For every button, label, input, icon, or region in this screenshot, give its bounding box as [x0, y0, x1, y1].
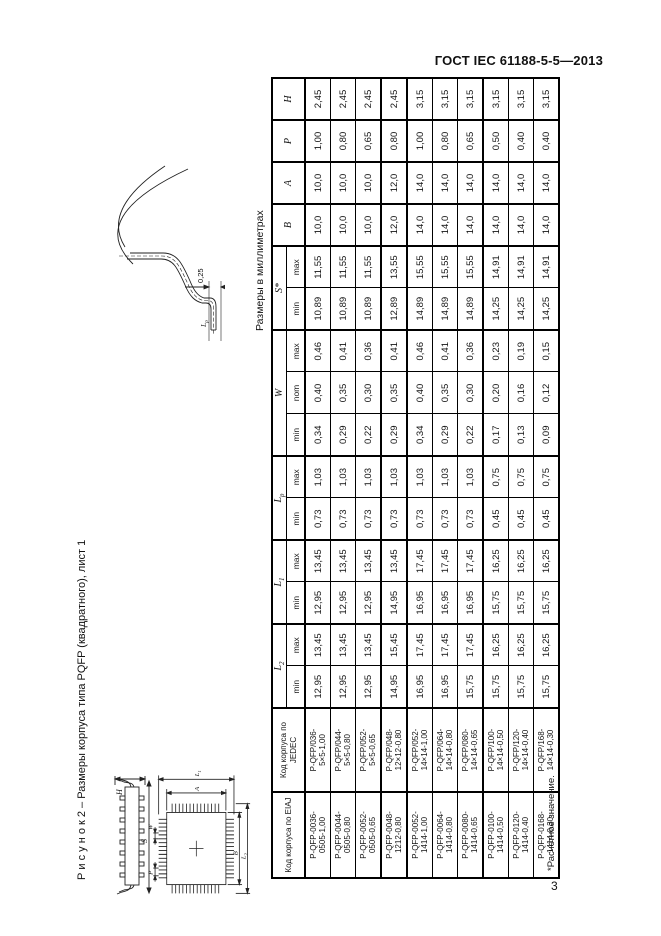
- page-number: 3: [551, 879, 558, 893]
- cell-value: 15,75: [458, 666, 484, 708]
- table-row: P-QFP-0048-1212-0,80 P-QFP/048-12×12-0,8…: [381, 78, 407, 878]
- cell-jedec-code: P-QFP/080-14×14-0,65: [458, 708, 484, 792]
- cell-value: 0,50: [483, 120, 509, 162]
- cell-value: 13,45: [331, 540, 356, 582]
- cell-value: 14,89: [433, 288, 458, 330]
- cell-value: 13,55: [381, 246, 407, 288]
- dim-label-b: B: [233, 851, 240, 855]
- cell-value: 1,03: [407, 456, 433, 498]
- cell-value: 12,89: [381, 288, 407, 330]
- cell-value: 15,55: [458, 246, 484, 288]
- cell-value: 12,0: [381, 204, 407, 246]
- cell-value: 1,00: [407, 120, 433, 162]
- cell-eiaj-code: P-QFP-0036-0505-1,00: [305, 792, 331, 878]
- cell-value: 13,45: [356, 540, 382, 582]
- cell-value: 0,80: [433, 120, 458, 162]
- table-row: P-QFP-0036-0505-1,00 P-QFP/036-5×5-1,00 …: [305, 78, 331, 878]
- column-header-b: B: [272, 204, 305, 246]
- cell-value: 2,45: [305, 78, 331, 120]
- cell-value: 13,45: [305, 540, 331, 582]
- subheader-max: max: [287, 624, 306, 666]
- cell-eiaj-code: P-QFP-0044-0505-0,80: [331, 792, 356, 878]
- cell-jedec-code: P-QFP/048-12×12-0,80: [381, 708, 407, 792]
- cell-value: 16,25: [534, 624, 560, 666]
- cell-value: 0,73: [356, 498, 382, 540]
- cell-eiaj-code: P-QFP-0100-1414-0,50: [483, 792, 509, 878]
- cell-value: 0,45: [534, 498, 560, 540]
- cell-value: 14,0: [407, 204, 433, 246]
- column-header-s: S*: [272, 246, 287, 330]
- cell-value: 17,45: [458, 540, 484, 582]
- cell-value: 0,73: [433, 498, 458, 540]
- cell-value: 11,55: [331, 246, 356, 288]
- cell-value: 12,95: [356, 582, 382, 624]
- cell-value: 12,95: [331, 666, 356, 708]
- cell-value: 0,75: [509, 456, 534, 498]
- cell-value: 16,95: [458, 582, 484, 624]
- cell-value: 14,95: [381, 666, 407, 708]
- cell-value: 0,34: [305, 414, 331, 456]
- column-header-eiaj: Код корпуса по EIAJ: [272, 792, 305, 878]
- cell-jedec-code: P-QFP/044-5×5-0,80: [331, 708, 356, 792]
- cell-value: 15,75: [534, 666, 560, 708]
- cell-value: 0,29: [433, 414, 458, 456]
- cell-value: 15,75: [509, 666, 534, 708]
- cell-jedec-code: P-QFP/036-5×5-1,00: [305, 708, 331, 792]
- cell-value: 15,45: [381, 624, 407, 666]
- cell-value: 1,03: [356, 456, 382, 498]
- cell-value: 10,0: [305, 204, 331, 246]
- column-header-w: W: [272, 330, 287, 456]
- cell-value: 14,25: [509, 288, 534, 330]
- cell-value: 15,75: [483, 666, 509, 708]
- subheader-max: max: [287, 246, 306, 288]
- cell-value: 14,0: [509, 162, 534, 204]
- cell-value: 16,25: [509, 540, 534, 582]
- cell-value: 0,13: [509, 414, 534, 456]
- cell-value: 0,46: [305, 330, 331, 372]
- cell-value: 13,45: [356, 624, 382, 666]
- cell-value: 3,15: [458, 78, 484, 120]
- column-header-l2: L2: [272, 624, 287, 708]
- cell-value: 2,45: [356, 78, 382, 120]
- table-footnote: *Расчетное значение.: [546, 775, 557, 871]
- cell-value: 0,80: [381, 120, 407, 162]
- cell-value: 11,55: [305, 246, 331, 288]
- column-header-lp: Lp: [272, 456, 287, 540]
- lead-detail-diagram: 0,25 Lp: [103, 162, 225, 347]
- cell-value: 17,45: [458, 624, 484, 666]
- subheader-max: max: [287, 330, 306, 372]
- column-header-h: H: [272, 78, 305, 120]
- cell-value: 1,03: [381, 456, 407, 498]
- table-row: P-QFP-0052-0505-0,65 P-QFP/052-5×5-0,65 …: [356, 78, 382, 878]
- subheader-nom: nom: [287, 372, 306, 414]
- cell-eiaj-code: P-QFP-0052-0505-0,65: [356, 792, 382, 878]
- cell-value: 0,20: [483, 372, 509, 414]
- cell-value: 0,65: [356, 120, 382, 162]
- table-row: P-QFP-0052-1414-1,00 P-QFP/052-14×14-1,0…: [407, 78, 433, 878]
- cell-value: 0,40: [509, 120, 534, 162]
- subheader-min: min: [287, 414, 306, 456]
- cell-value: 0,73: [305, 498, 331, 540]
- cell-value: 14,0: [458, 162, 484, 204]
- cell-value: 0,34: [407, 414, 433, 456]
- cell-value: 15,55: [433, 246, 458, 288]
- cell-value: 0,30: [356, 372, 382, 414]
- cell-value: 0,09: [534, 414, 560, 456]
- table-row: P-QFP-0100-1414-0,50 P-QFP/100-14×14-0,5…: [483, 78, 509, 878]
- cell-value: 0,15: [534, 330, 560, 372]
- dimensions-table: Код корпуса по EIAJ Код корпуса по JEDEC…: [271, 77, 560, 879]
- cell-value: 16,95: [433, 666, 458, 708]
- cell-value: 0,41: [433, 330, 458, 372]
- cell-value: 14,0: [407, 162, 433, 204]
- cell-value: 0,73: [407, 498, 433, 540]
- column-header-p: P: [272, 120, 305, 162]
- cell-value: 0,41: [381, 330, 407, 372]
- top-view-diagram: P W A L1 B L2: [147, 752, 251, 908]
- cell-value: 0,17: [483, 414, 509, 456]
- cell-value: 17,45: [433, 540, 458, 582]
- dim-label-offset: 0,25: [196, 268, 205, 283]
- cell-value: 16,95: [407, 666, 433, 708]
- cell-value: 16,95: [433, 582, 458, 624]
- dim-label-p: P: [148, 871, 155, 876]
- subheader-max: max: [287, 456, 306, 498]
- cell-value: 12,95: [305, 582, 331, 624]
- subheader-min: min: [287, 288, 306, 330]
- cell-value: 2,45: [331, 78, 356, 120]
- cell-value: 10,0: [331, 162, 356, 204]
- cell-value: 0,41: [331, 330, 356, 372]
- cell-value: 16,95: [407, 582, 433, 624]
- cell-value: 17,45: [407, 540, 433, 582]
- cell-value: 0,40: [305, 372, 331, 414]
- cell-value: 13,45: [381, 540, 407, 582]
- cell-value: 0,40: [407, 372, 433, 414]
- cell-value: 3,15: [509, 78, 534, 120]
- cell-value: 13,45: [305, 624, 331, 666]
- table-row: P-QFP-0044-0505-0,80 P-QFP/044-5×5-0,80 …: [331, 78, 356, 878]
- cell-jedec-code: P-QFP/052-5×5-0,65: [356, 708, 382, 792]
- cell-value: 0,12: [534, 372, 560, 414]
- cell-value: 14,0: [534, 162, 560, 204]
- cell-value: 14,0: [433, 204, 458, 246]
- cell-value: 3,15: [407, 78, 433, 120]
- cell-value: 14,0: [483, 162, 509, 204]
- cell-value: 12,95: [356, 666, 382, 708]
- subheader-min: min: [287, 498, 306, 540]
- cell-value: 0,35: [381, 372, 407, 414]
- cell-eiaj-code: P-QFP-0052-1414-1,00: [407, 792, 433, 878]
- table-row: P-QFP-0080-1414-0,65 P-QFP/080-14×14-0,6…: [458, 78, 484, 878]
- cell-value: 10,89: [331, 288, 356, 330]
- cell-value: 1,03: [458, 456, 484, 498]
- cell-value: 0,40: [534, 120, 560, 162]
- cell-value: 14,91: [483, 246, 509, 288]
- cell-value: 13,45: [331, 624, 356, 666]
- cell-value: 14,89: [407, 288, 433, 330]
- cell-value: 14,91: [509, 246, 534, 288]
- cell-value: 14,25: [534, 288, 560, 330]
- cell-eiaj-code: P-QFP-0080-1414-0,65: [458, 792, 484, 878]
- cell-value: 0,35: [331, 372, 356, 414]
- cell-value: 16,25: [483, 624, 509, 666]
- cell-jedec-code: P-QFP/064-14×14-0,80: [433, 708, 458, 792]
- cell-value: 14,91: [534, 246, 560, 288]
- cell-value: 3,15: [534, 78, 560, 120]
- dim-label-l2: L2: [241, 852, 249, 860]
- cell-jedec-code: P-QFP/120-14×14-0,40: [509, 708, 534, 792]
- dim-label-h: H: [115, 788, 124, 796]
- cell-value: 10,89: [305, 288, 331, 330]
- table-body: P-QFP-0036-0505-1,00 P-QFP/036-5×5-1,00 …: [305, 78, 559, 878]
- cell-value: 0,19: [509, 330, 534, 372]
- cell-value: 0,73: [381, 498, 407, 540]
- cell-value: 16,25: [483, 540, 509, 582]
- cell-value: 14,0: [509, 204, 534, 246]
- cell-value: 0,29: [381, 414, 407, 456]
- cell-value: 16,25: [534, 540, 560, 582]
- column-header-a: A: [272, 162, 305, 204]
- cell-value: 0,36: [458, 330, 484, 372]
- cell-value: 12,95: [305, 666, 331, 708]
- cell-value: 15,75: [534, 582, 560, 624]
- cell-value: 14,95: [381, 582, 407, 624]
- dim-label-a: A: [194, 786, 201, 792]
- figure-caption: Р и с у н о к 2 – Размеры корпуса типа P…: [76, 340, 88, 880]
- cell-value: 10,0: [331, 204, 356, 246]
- cell-value: 17,45: [433, 624, 458, 666]
- column-header-jedec: Код корпуса по JEDEC: [272, 708, 305, 792]
- subheader-min: min: [287, 666, 306, 708]
- cell-value: 0,16: [509, 372, 534, 414]
- table-row: P-QFP-0064-1414-0,80 P-QFP/064-14×14-0,8…: [433, 78, 458, 878]
- cell-value: 15,75: [509, 582, 534, 624]
- cell-value: 10,89: [356, 288, 382, 330]
- rotated-content: Р и с у н о к 2 – Размеры корпуса типа P…: [75, 55, 567, 935]
- subheader-max: max: [287, 540, 306, 582]
- cell-value: 0,36: [356, 330, 382, 372]
- package-body-arc: [118, 169, 188, 264]
- cell-value: 15,75: [483, 582, 509, 624]
- cell-value: 14,25: [483, 288, 509, 330]
- cell-value: 0,80: [331, 120, 356, 162]
- side-view-leads: [120, 796, 144, 877]
- cell-value: 12,0: [381, 162, 407, 204]
- dim-label-l1: L1: [194, 770, 202, 777]
- document-page: ГОСТ IEC 61188-5-5—2013 Р и с у н о к 2 …: [0, 0, 661, 936]
- cell-value: 10,0: [356, 204, 382, 246]
- cell-value: 0,46: [407, 330, 433, 372]
- cell-value: 0,45: [483, 498, 509, 540]
- cell-value: 3,15: [483, 78, 509, 120]
- cell-value: 16,25: [509, 624, 534, 666]
- cell-value: 1,00: [305, 120, 331, 162]
- cell-value: 0,73: [458, 498, 484, 540]
- cell-value: 1,03: [433, 456, 458, 498]
- cell-value: 0,35: [433, 372, 458, 414]
- cell-value: 14,0: [458, 204, 484, 246]
- cell-value: 0,73: [331, 498, 356, 540]
- cell-value: 0,45: [509, 498, 534, 540]
- cell-value: 1,03: [305, 456, 331, 498]
- cell-value: 3,15: [433, 78, 458, 120]
- cell-value: 12,95: [331, 582, 356, 624]
- cell-value: 0,75: [483, 456, 509, 498]
- cell-value: 0,22: [458, 414, 484, 456]
- cell-value: 11,55: [356, 246, 382, 288]
- subheader-min: min: [287, 582, 306, 624]
- units-note: Размеры в миллиметрах: [254, 210, 266, 331]
- cell-value: 0,23: [483, 330, 509, 372]
- cell-value: 14,0: [433, 162, 458, 204]
- dim-label-lp: Lp: [199, 320, 210, 328]
- cell-value: 17,45: [407, 624, 433, 666]
- cell-value: 0,30: [458, 372, 484, 414]
- cell-eiaj-code: P-QFP-0120-1414-0,40: [509, 792, 534, 878]
- cell-eiaj-code: P-QFP-0048-1212-0,80: [381, 792, 407, 878]
- cell-value: 10,0: [356, 162, 382, 204]
- cell-jedec-code: P-QFP/100-14×14-0,50: [483, 708, 509, 792]
- cell-value: 14,0: [534, 204, 560, 246]
- cell-value: 1,03: [331, 456, 356, 498]
- cell-value: 0,75: [534, 456, 560, 498]
- cell-value: 2,45: [381, 78, 407, 120]
- cell-value: 0,65: [458, 120, 484, 162]
- cell-value: 10,0: [305, 162, 331, 204]
- cell-value: 14,89: [458, 288, 484, 330]
- dim-label-w: W: [148, 824, 155, 830]
- cell-value: 0,22: [356, 414, 382, 456]
- cell-value: 14,0: [483, 204, 509, 246]
- cell-value: 15,55: [407, 246, 433, 288]
- cell-eiaj-code: P-QFP-0064-1414-0,80: [433, 792, 458, 878]
- table-row: P-QFP-0120-1414-0,40 P-QFP/120-14×14-0,4…: [509, 78, 534, 878]
- table-row: P-QFP-0168-1414-0,30 P-QFP/168-14×14-0,3…: [534, 78, 560, 878]
- column-header-l1: L1: [272, 540, 287, 624]
- cell-value: 0,29: [331, 414, 356, 456]
- cell-jedec-code: P-QFP/052-14×14-1,00: [407, 708, 433, 792]
